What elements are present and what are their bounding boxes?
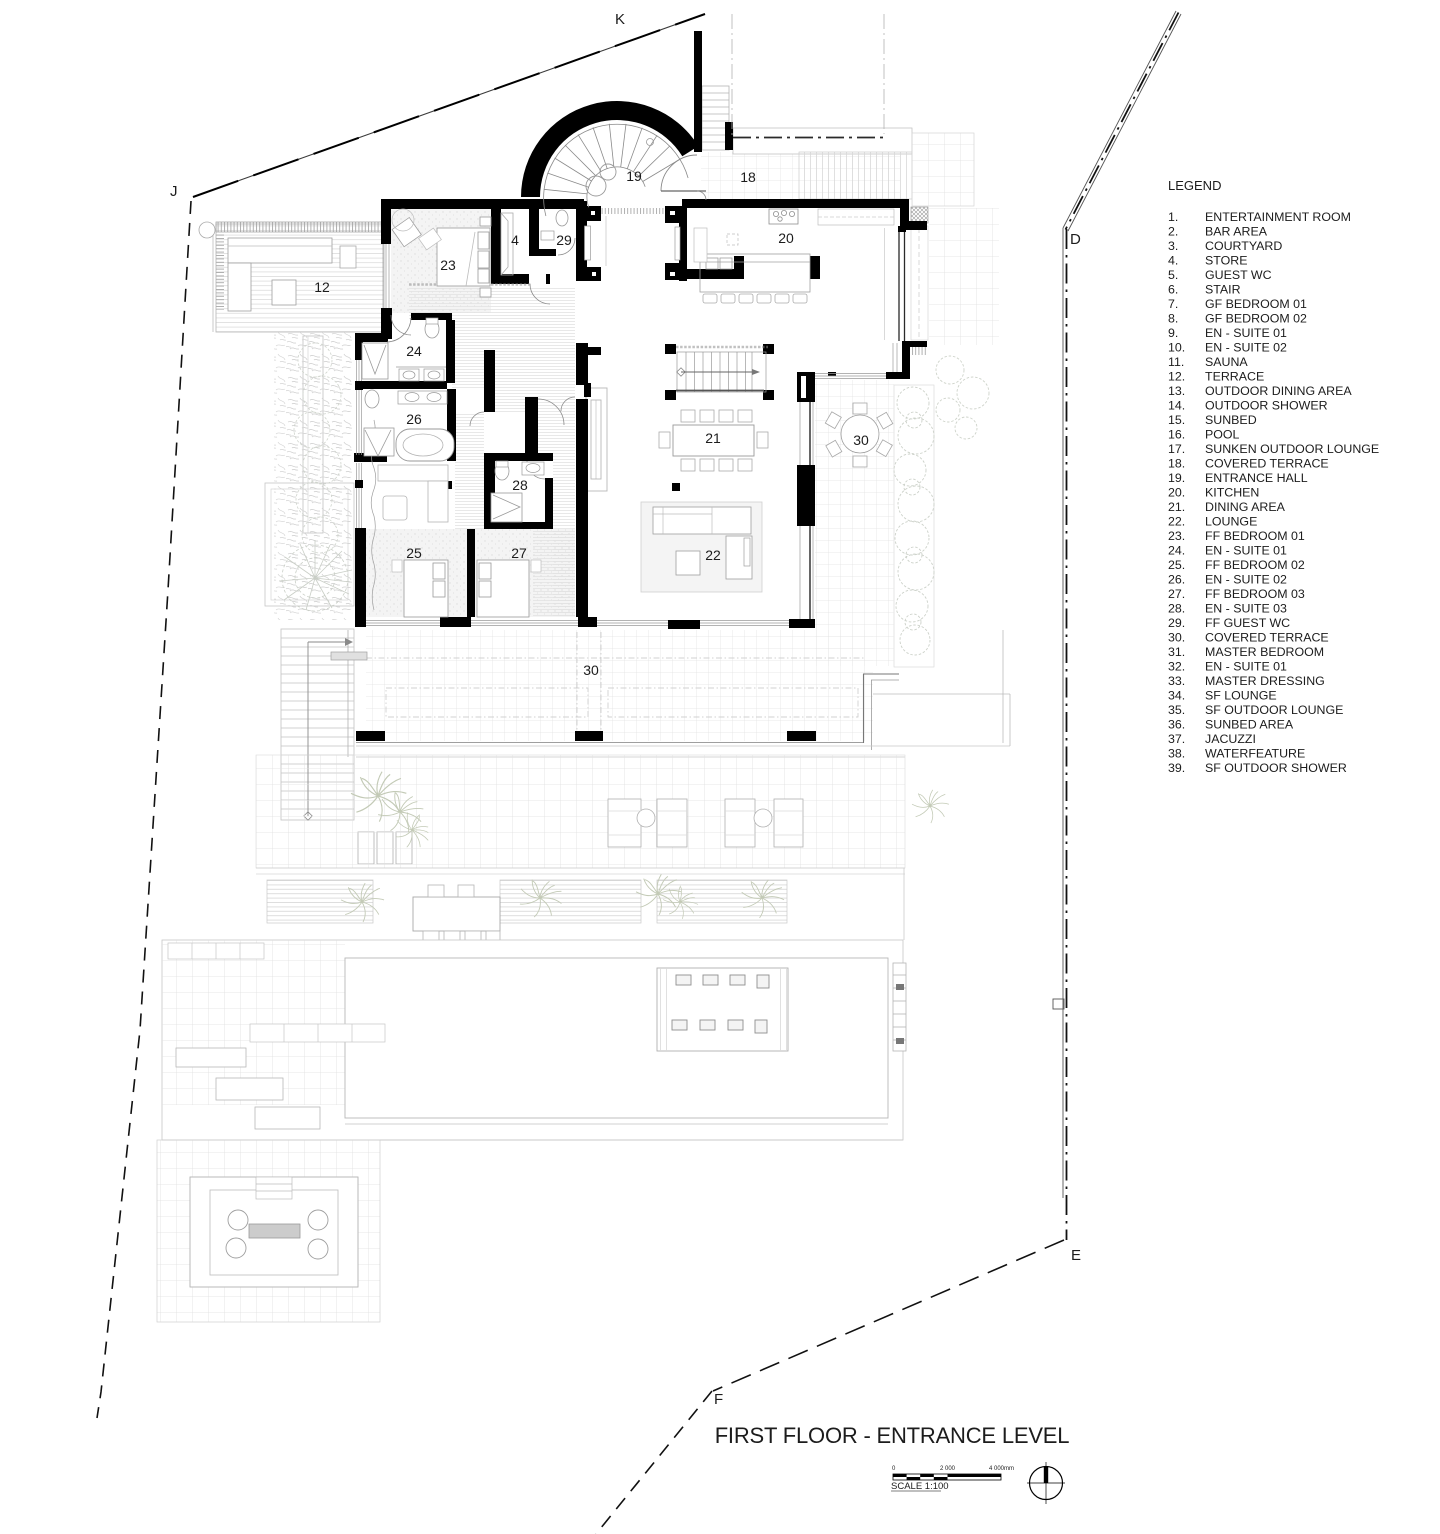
svg-text:MASTER DRESSING: MASTER DRESSING [1205,674,1325,688]
svg-text:OUTDOOR SHOWER: OUTDOOR SHOWER [1205,399,1328,413]
svg-text:12: 12 [314,279,330,295]
svg-text:18: 18 [740,169,756,185]
svg-text:SF LOUNGE: SF LOUNGE [1205,689,1277,703]
svg-text:21: 21 [705,430,721,446]
svg-text:2 000: 2 000 [940,1466,956,1472]
svg-text:EN - SUITE 01: EN - SUITE 01 [1205,544,1287,558]
svg-text:SUNBED AREA: SUNBED AREA [1205,718,1294,732]
svg-text:SF OUTDOOR LOUNGE: SF OUTDOOR LOUNGE [1205,703,1343,717]
svg-text:19: 19 [626,168,642,184]
svg-text:23: 23 [440,257,456,273]
svg-text:SUNKEN OUTDOOR LOUNGE: SUNKEN OUTDOOR LOUNGE [1205,442,1379,456]
svg-text:COURTYARD: COURTYARD [1205,239,1282,253]
svg-text:OUTDOOR DINING AREA: OUTDOOR DINING AREA [1205,384,1352,398]
svg-text:14.: 14. [1168,399,1185,413]
svg-text:3.: 3. [1168,239,1178,253]
svg-text:SUNBED: SUNBED [1205,413,1257,427]
svg-text:17.: 17. [1168,442,1185,456]
svg-text:GUEST WC: GUEST WC [1205,268,1272,282]
svg-text:EN - SUITE 02: EN - SUITE 02 [1205,573,1287,587]
svg-text:EN - SUITE 01: EN - SUITE 01 [1205,326,1287,340]
svg-text:36.: 36. [1168,718,1185,732]
svg-text:30.: 30. [1168,631,1185,645]
svg-text:31.: 31. [1168,645,1185,659]
svg-text:29: 29 [556,232,572,248]
svg-text:D: D [1070,231,1081,248]
svg-text:24.: 24. [1168,544,1185,558]
svg-text:13.: 13. [1168,384,1185,398]
svg-text:30: 30 [583,662,599,678]
svg-text:GF BEDROOM 01: GF BEDROOM 01 [1205,297,1307,311]
svg-text:25: 25 [406,545,422,561]
svg-text:ENTRANCE HALL: ENTRANCE HALL [1205,471,1308,485]
svg-text:16.: 16. [1168,428,1185,442]
svg-text:28.: 28. [1168,602,1185,616]
svg-text:ENTERTAINMENT ROOM: ENTERTAINMENT ROOM [1205,210,1351,224]
svg-text:STORE: STORE [1205,254,1247,268]
svg-text:TERRACE: TERRACE [1205,370,1264,384]
svg-text:20.: 20. [1168,486,1185,500]
svg-text:SCALE 1:100: SCALE 1:100 [891,1481,949,1492]
svg-text:26: 26 [406,411,422,427]
svg-text:21.: 21. [1168,500,1185,514]
svg-text:F: F [714,1391,723,1408]
svg-text:26.: 26. [1168,573,1185,587]
svg-text:FF BEDROOM 01: FF BEDROOM 01 [1205,529,1305,543]
svg-text:11.: 11. [1168,355,1184,369]
svg-text:9.: 9. [1168,326,1178,340]
svg-text:MASTER BEDROOM: MASTER BEDROOM [1205,645,1324,659]
svg-text:LEGEND: LEGEND [1168,178,1221,193]
svg-text:FF BEDROOM 02: FF BEDROOM 02 [1205,558,1305,572]
svg-text:39.: 39. [1168,761,1185,775]
svg-text:30: 30 [853,432,869,448]
svg-text:5.: 5. [1168,268,1178,282]
svg-text:22.: 22. [1168,515,1185,529]
svg-text:27.: 27. [1168,587,1185,601]
svg-text:STAIR: STAIR [1205,283,1241,297]
svg-text:7.: 7. [1168,297,1178,311]
svg-text:COVERED TERRACE: COVERED TERRACE [1205,457,1329,471]
svg-text:10.: 10. [1168,341,1185,355]
svg-text:33.: 33. [1168,674,1185,688]
svg-text:E: E [1071,1247,1081,1264]
svg-text:20: 20 [778,230,794,246]
svg-text:28: 28 [512,477,528,493]
svg-text:22: 22 [705,547,721,563]
svg-text:37.: 37. [1168,732,1185,746]
svg-text:4.: 4. [1168,254,1178,268]
svg-text:15.: 15. [1168,413,1185,427]
svg-text:COVERED TERRACE: COVERED TERRACE [1205,631,1329,645]
svg-text:29.: 29. [1168,616,1185,630]
svg-text:GF BEDROOM 02: GF BEDROOM 02 [1205,312,1307,326]
svg-text:4 000mm: 4 000mm [989,1466,1014,1472]
svg-text:DINING AREA: DINING AREA [1205,500,1286,514]
svg-text:1.: 1. [1168,210,1178,224]
svg-text:SF OUTDOOR SHOWER: SF OUTDOOR SHOWER [1205,761,1347,775]
svg-text:EN - SUITE 01: EN - SUITE 01 [1205,660,1287,674]
svg-text:2.: 2. [1168,225,1178,239]
svg-text:19.: 19. [1168,471,1185,485]
svg-text:8.: 8. [1168,312,1178,326]
svg-text:SAUNA: SAUNA [1205,355,1248,369]
svg-text:JACUZZI: JACUZZI [1205,732,1256,746]
svg-text:WATERFEATURE: WATERFEATURE [1205,747,1305,761]
svg-text:18.: 18. [1168,457,1185,471]
svg-text:POOL: POOL [1205,428,1240,442]
svg-text:25.: 25. [1168,558,1185,572]
svg-text:FF GUEST WC: FF GUEST WC [1205,616,1290,630]
svg-text:EN - SUITE 02: EN - SUITE 02 [1205,341,1287,355]
svg-text:EN - SUITE 03: EN - SUITE 03 [1205,602,1287,616]
svg-text:LOUNGE: LOUNGE [1205,515,1257,529]
svg-text:6.: 6. [1168,283,1178,297]
svg-text:12.: 12. [1168,370,1185,384]
svg-text:27: 27 [511,545,527,561]
svg-text:35.: 35. [1168,703,1185,717]
svg-text:FF BEDROOM 03: FF BEDROOM 03 [1205,587,1305,601]
svg-text:BAR AREA: BAR AREA [1205,225,1268,239]
svg-text:J: J [170,183,178,200]
svg-text:24: 24 [406,343,422,359]
svg-text:K: K [615,11,625,28]
svg-text:4: 4 [511,232,519,248]
svg-text:38.: 38. [1168,747,1185,761]
svg-text:23.: 23. [1168,529,1185,543]
svg-text:34.: 34. [1168,689,1185,703]
svg-text:32.: 32. [1168,660,1185,674]
svg-text:FIRST FLOOR - ENTRANCE LEVEL: FIRST FLOOR - ENTRANCE LEVEL [715,1423,1070,1448]
svg-text:KITCHEN: KITCHEN [1205,486,1259,500]
